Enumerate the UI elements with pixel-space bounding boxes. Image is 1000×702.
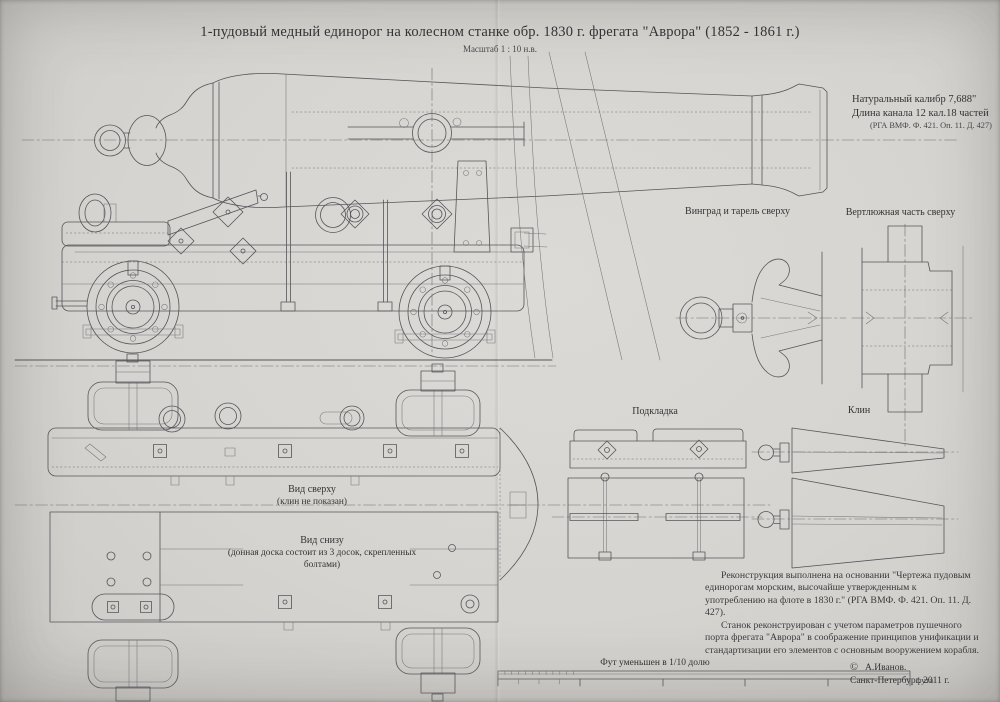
author-credit: © А.Иванов. Санкт-Петербург. 2011 г. <box>850 661 949 687</box>
carriage-wheels-side-view <box>83 261 495 358</box>
carriage-plan-view <box>48 354 538 701</box>
label-wedge: Клин <box>809 405 909 416</box>
label-cascabel-top-view: Винград и тарель сверху <box>650 206 825 217</box>
credit-author: А.Иванов. <box>865 662 906 674</box>
label-top-view-note: (клин не показан) <box>232 496 392 508</box>
scale-note: Масштаб 1 : 10 н.в. <box>0 44 1000 54</box>
label-bottom-view-title: Вид снизу <box>212 535 432 548</box>
spec-caliber: Натуральный калибр 7,688" <box>852 93 992 107</box>
cannon-barrel-side-view <box>95 73 828 207</box>
spec-archive-ref: (РГА ВМФ. Ф. 421. Оп. 11. Д. 427) <box>852 121 992 132</box>
label-pad: Подкладка <box>600 406 710 417</box>
note-paragraph-1: Реконструкция выполнена на основании "Че… <box>705 570 979 620</box>
sheet-title: 1-пудовый медный единорог на колесном ст… <box>0 24 1000 41</box>
gunport-section <box>510 56 553 358</box>
drawing-sheet: 1-пудовый медный единорог на колесном ст… <box>0 0 1000 702</box>
scale-ruler <box>498 671 910 686</box>
label-bottom-view: Вид снизу (донная доска состоит из 3 дос… <box>212 535 432 572</box>
copyright-icon: © <box>850 661 858 675</box>
note-paragraph-2: Станок реконструирован с учетом параметр… <box>705 620 979 657</box>
credit-city-year: Санкт-Петербург. 2011 г. <box>850 675 949 687</box>
label-top-view: Вид сверху (клин не показан) <box>232 483 392 508</box>
reconstruction-notes: Реконструкция выполнена на основании "Че… <box>705 570 979 657</box>
label-bottom-view-note: (донная доска состоит из 3 досок, скрепл… <box>212 548 432 572</box>
spec-block: Натуральный калибр 7,688" Длина канала 1… <box>852 93 992 132</box>
pad-detail <box>568 429 746 560</box>
label-top-view-title: Вид сверху <box>232 483 392 496</box>
spec-bore-length: Длина канала 12 кал.18 частей <box>852 107 992 121</box>
wedge-detail <box>758 428 944 568</box>
label-trunnion-top-view: Вертлюжная часть сверху <box>818 207 983 218</box>
trunnion-top-detail <box>862 226 963 412</box>
label-foot-scale: Фут уменьшен в 1/10 долю <box>560 658 750 668</box>
paper-fold-line <box>494 0 501 702</box>
